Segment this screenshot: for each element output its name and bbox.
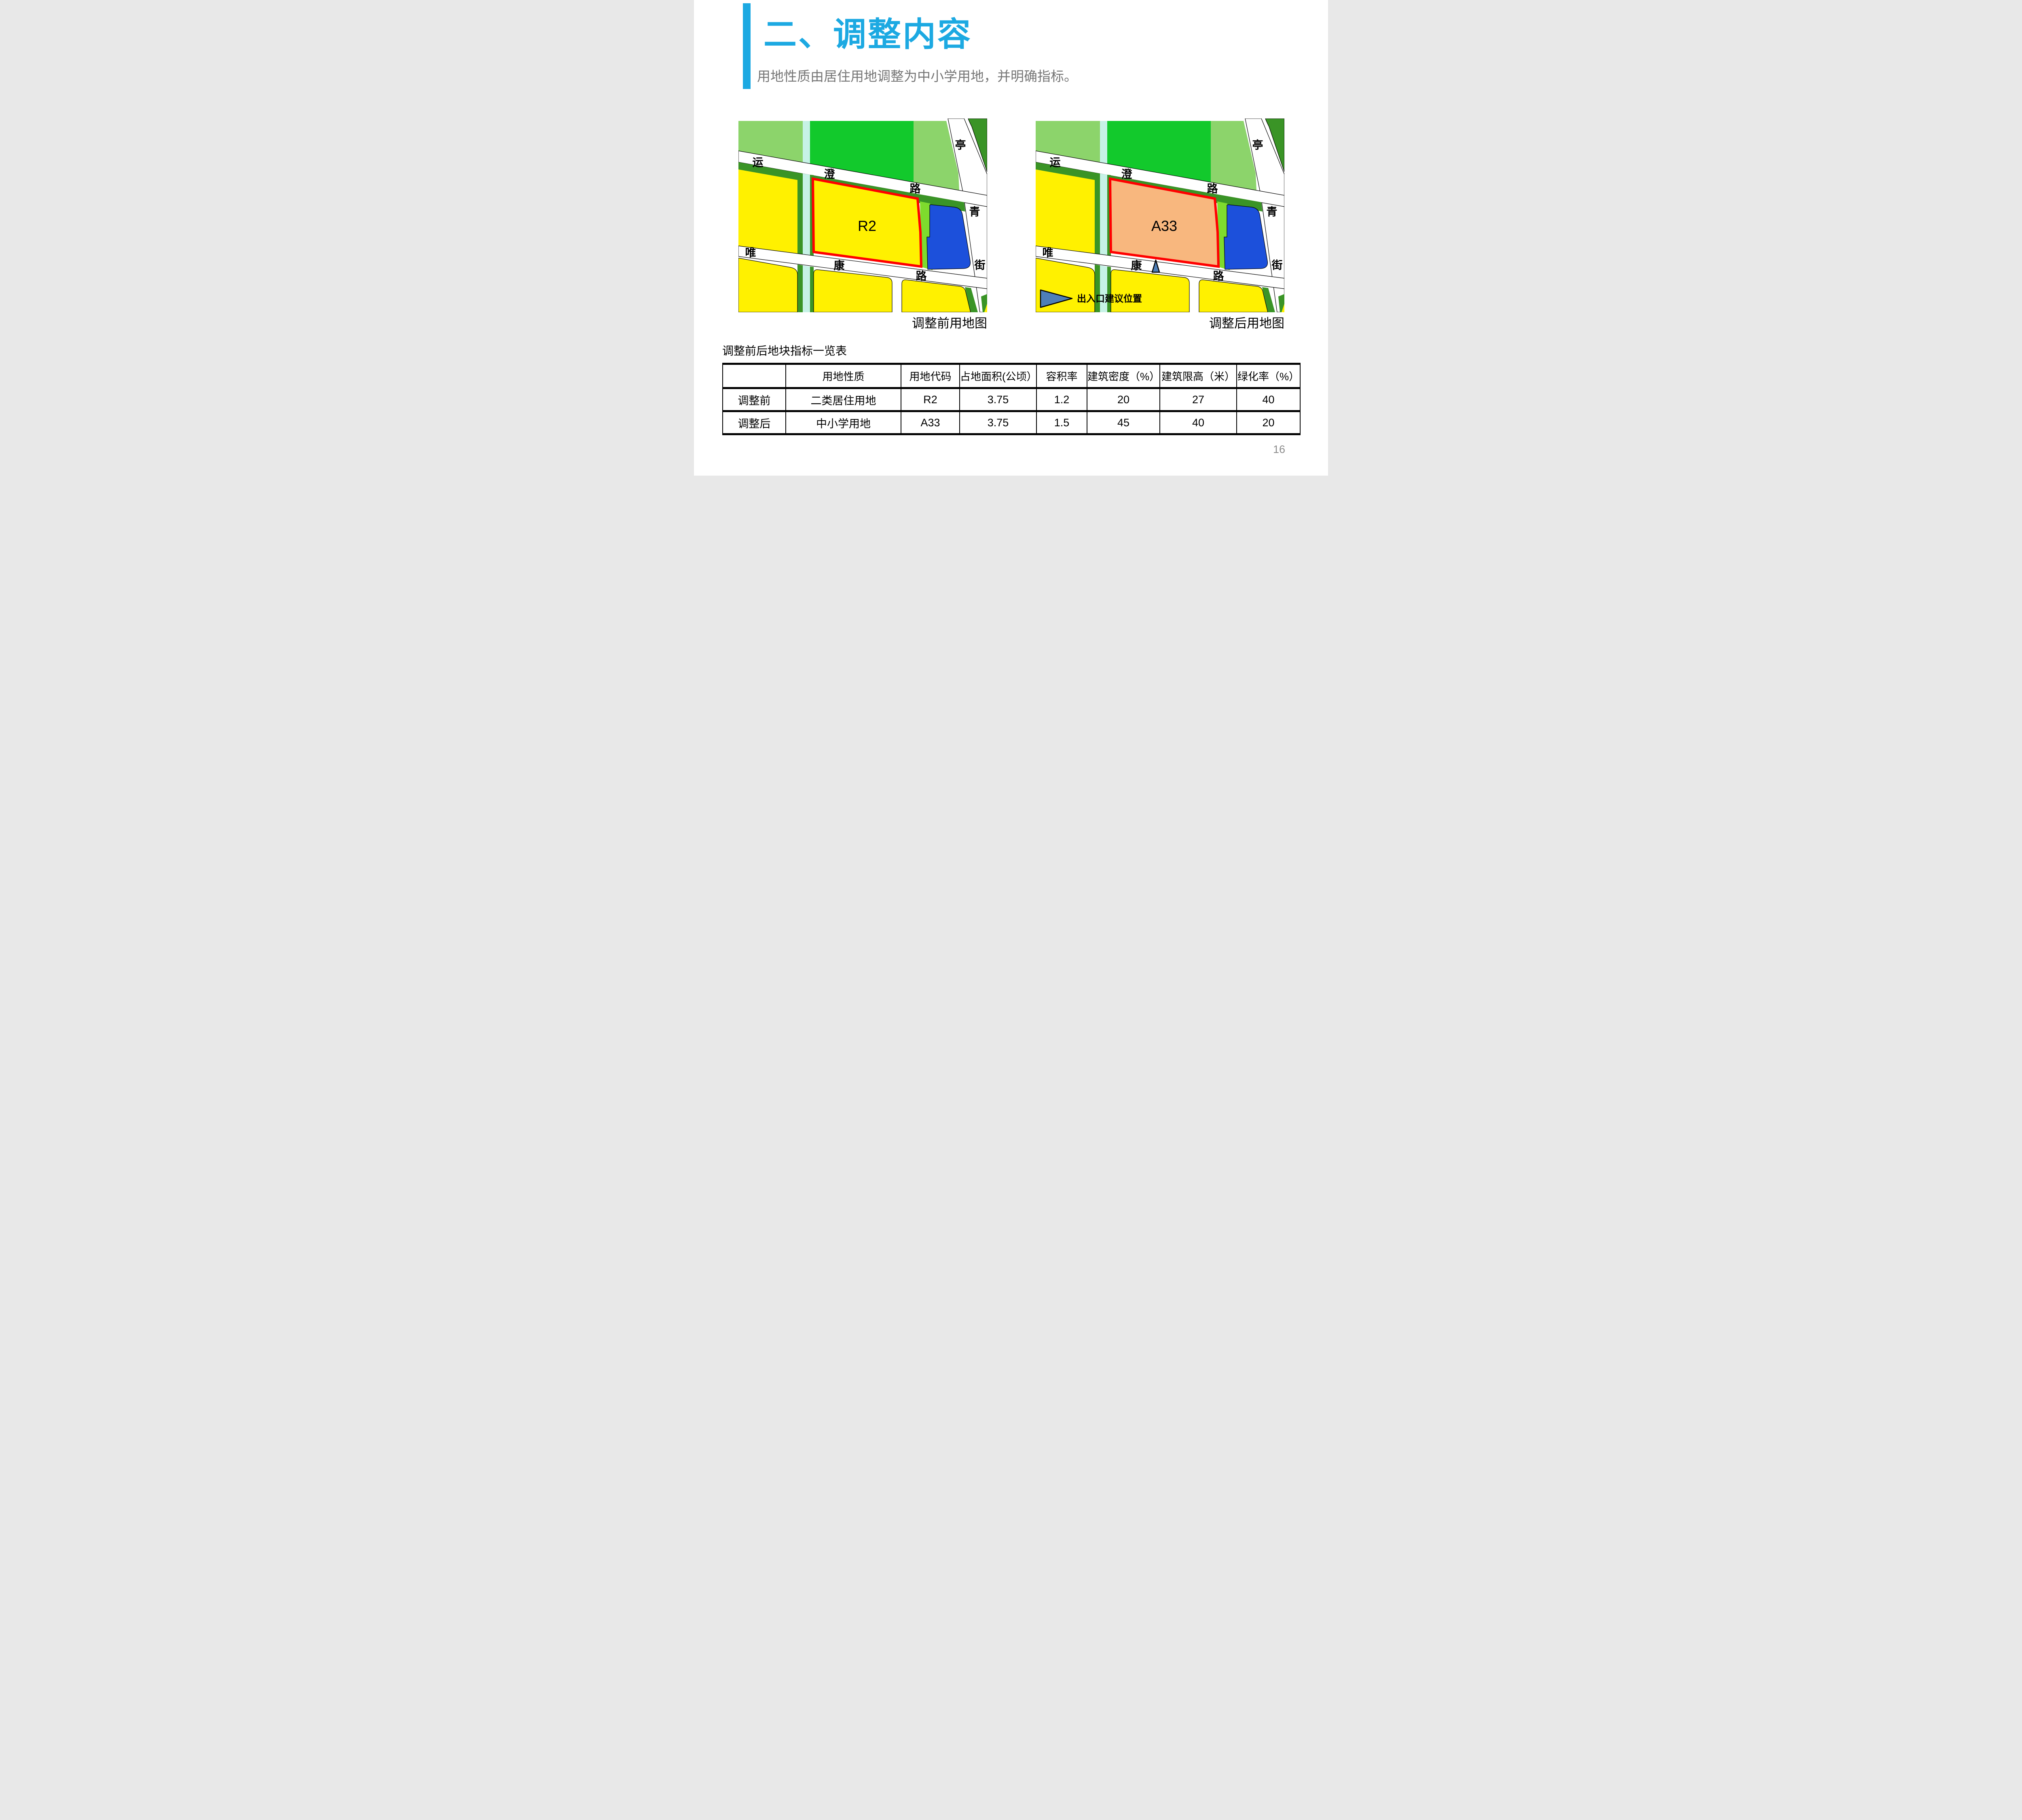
title-accent-bar [743, 3, 751, 89]
canal-edge-left-lower [797, 265, 803, 312]
slide: 二、调整内容 用地性质由居住用地调整为中小学用地，并明确指标。 [694, 0, 1328, 476]
table-title: 调整前后地块指标一览表 [722, 342, 847, 358]
map-after-svg: 运 澄 路 亭 青 街 唯 康 路 A33 出入口建议位置 [1036, 119, 1284, 312]
road-char-lu-bottom: 路 [1213, 270, 1225, 282]
map-caption-before: 调整前用地图 [738, 313, 993, 331]
header-land-code: 用地代码 [901, 364, 960, 388]
canal-water-lower [1100, 265, 1107, 312]
road-char-wei: 唯 [745, 247, 756, 259]
cell-density: 45 [1087, 411, 1160, 434]
cell-land-code: A33 [901, 411, 960, 434]
road-char-ting: 亭 [955, 139, 966, 151]
road-char-wei: 唯 [1043, 247, 1053, 259]
cell-land-use: 中小学用地 [786, 411, 901, 434]
canal-water [1100, 174, 1107, 256]
header-area: 占地面积(公顷） [960, 364, 1036, 388]
cell-land-use: 二类居住用地 [786, 388, 901, 411]
cell-area: 3.75 [960, 388, 1036, 411]
plot-code-label: A33 [1151, 218, 1177, 234]
yellow-parcel-left [1036, 169, 1095, 254]
yellow-parcel-bottom-middle [814, 270, 892, 312]
yellow-parcel-bottom-middle [1111, 270, 1189, 312]
header-blank [723, 364, 786, 388]
table-header-row: 用地性质 用地代码 占地面积(公顷） 容积率 建筑密度（%） 建筑限高（米） 绿… [723, 364, 1300, 388]
map-before-svg: 运 澄 路 亭 青 街 唯 康 路 R2 [738, 119, 987, 312]
road-char-jie: 街 [1271, 259, 1283, 271]
canal-upper [803, 121, 810, 164]
road-char-lu-top: 路 [910, 182, 921, 195]
cell-height-limit: 27 [1160, 388, 1237, 411]
road-char-cheng: 澄 [824, 168, 835, 180]
entrance-legend-label: 出入口建议位置 [1077, 293, 1142, 304]
canal-edge-left-lower [1095, 265, 1100, 312]
cell-far: 1.2 [1036, 388, 1087, 411]
cell-green-rate: 40 [1237, 388, 1300, 411]
page-title: 二、调整内容 [764, 7, 972, 55]
row-label: 调整前 [723, 388, 786, 411]
header-green-rate: 绿化率（%） [1237, 364, 1300, 388]
canal-edge-left [797, 173, 803, 255]
canal-upper [1100, 121, 1107, 164]
indicators-table: 用地性质 用地代码 占地面积(公顷） 容积率 建筑密度（%） 建筑限高（米） 绿… [722, 363, 1301, 435]
canal-water [803, 174, 810, 256]
canal-edge-right-lower [810, 267, 814, 312]
cell-height-limit: 40 [1160, 411, 1237, 434]
table-row-before: 调整前 二类居住用地 R2 3.75 1.2 20 27 40 [723, 388, 1300, 411]
land-use-map-after: 运 澄 路 亭 青 街 唯 康 路 A33 出入口建议位置 [1036, 119, 1284, 312]
road-char-qing: 青 [969, 206, 980, 218]
plot-code-label: R2 [858, 218, 876, 234]
road-char-qing: 青 [1267, 206, 1277, 218]
road-char-yun: 运 [753, 157, 764, 169]
yellow-parcel-left [738, 169, 797, 254]
yellow-parcel-bottom-left [738, 258, 797, 312]
canal-edge-right-lower [1107, 267, 1111, 312]
row-label: 调整后 [723, 411, 786, 434]
cell-land-code: R2 [901, 388, 960, 411]
cell-area: 3.75 [960, 411, 1036, 434]
road-char-lu-bottom: 路 [916, 270, 927, 282]
map-caption-after: 调整后用地图 [1036, 313, 1286, 331]
header-height-limit: 建筑限高（米） [1160, 364, 1237, 388]
road-char-lu-top: 路 [1207, 182, 1218, 195]
header-land-use: 用地性质 [786, 364, 901, 388]
road-char-kang: 康 [834, 259, 845, 272]
subtitle: 用地性质由居住用地调整为中小学用地，并明确指标。 [757, 66, 1077, 85]
blue-parcel [1224, 205, 1267, 269]
blue-parcel [927, 205, 970, 269]
road-char-yun: 运 [1050, 157, 1061, 169]
road-char-cheng: 澄 [1121, 168, 1133, 180]
cell-density: 20 [1087, 388, 1160, 411]
header-far: 容积率 [1036, 364, 1087, 388]
cell-far: 1.5 [1036, 411, 1087, 434]
canal-water-lower [803, 265, 810, 312]
road-char-ting: 亭 [1252, 139, 1263, 151]
header-density: 建筑密度（%） [1087, 364, 1160, 388]
road-char-kang: 康 [1131, 259, 1142, 272]
table-row-after: 调整后 中小学用地 A33 3.75 1.5 45 40 20 [723, 411, 1300, 434]
canal-edge-left [1095, 173, 1100, 255]
cell-green-rate: 20 [1237, 411, 1300, 434]
page-number: 16 [1273, 443, 1285, 456]
road-char-jie: 街 [974, 259, 986, 271]
land-use-map-before: 运 澄 路 亭 青 街 唯 康 路 R2 [738, 119, 987, 312]
